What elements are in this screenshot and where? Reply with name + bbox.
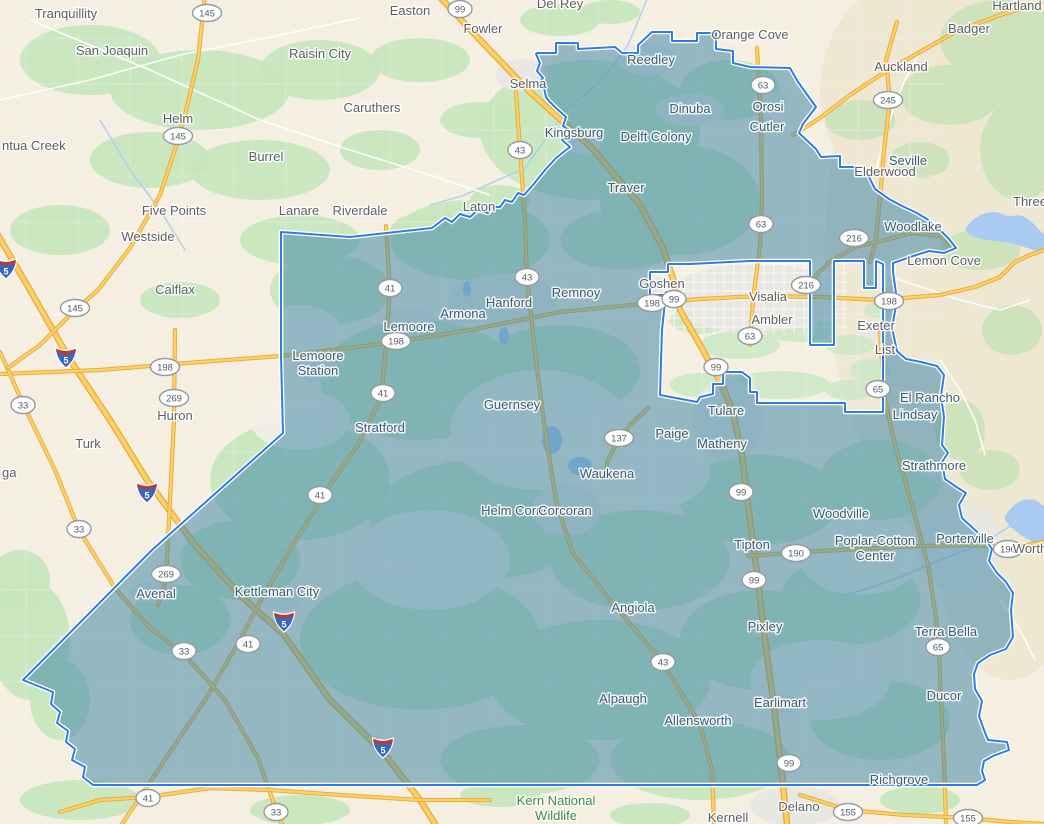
route-shield-245: 245: [874, 92, 903, 109]
place-label-orange-cove[interactable]: Orange Cove: [711, 27, 788, 42]
route-shield-41: 41: [236, 636, 260, 653]
place-label-elderwood[interactable]: Elderwood: [854, 164, 915, 179]
svg-text:43: 43: [658, 657, 669, 668]
route-shield-43: 43: [508, 142, 532, 159]
svg-text:99: 99: [736, 487, 747, 498]
place-label-fowler[interactable]: Fowler: [463, 21, 503, 36]
svg-text:5: 5: [144, 491, 149, 501]
place-label-easton[interactable]: Easton: [390, 3, 430, 18]
place-label-dinuba[interactable]: Dinuba: [669, 101, 711, 116]
svg-text:145: 145: [170, 131, 186, 142]
svg-text:65: 65: [873, 384, 884, 395]
place-label-laton[interactable]: Laton: [463, 199, 496, 214]
svg-text:198: 198: [157, 362, 173, 373]
svg-text:198: 198: [388, 336, 404, 347]
svg-text:41: 41: [378, 388, 389, 399]
route-shield-269: 269: [152, 566, 181, 583]
place-label-lemon-cove[interactable]: Lemon Cove: [907, 253, 981, 268]
svg-text:43: 43: [522, 272, 533, 283]
place-label-kettleman-city[interactable]: Kettleman City: [235, 584, 320, 599]
place-label-huron[interactable]: Huron: [157, 408, 192, 423]
place-label-earlimart[interactable]: Earlimart: [754, 695, 806, 710]
route-shield-137: 137: [605, 430, 634, 447]
svg-text:65: 65: [933, 642, 944, 653]
route-shield-99: 99: [777, 755, 801, 772]
route-shield-198: 198: [151, 359, 180, 376]
place-label-alpaugh[interactable]: Alpaugh: [599, 691, 647, 706]
place-label-allensworth[interactable]: Allensworth: [664, 713, 731, 728]
place-label-lemoore[interactable]: Lemoore: [383, 319, 434, 334]
place-label-helm[interactable]: Helm: [163, 111, 193, 126]
hill-vegetation-patch: [960, 450, 1020, 490]
place-label-raisin-city[interactable]: Raisin City: [289, 46, 352, 61]
place-label-lanare[interactable]: Lanare: [279, 203, 319, 218]
place-label-angiola[interactable]: Angiola: [611, 600, 655, 615]
place-label-woodlake[interactable]: Woodlake: [884, 219, 942, 234]
route-shield-198: 198: [382, 333, 411, 350]
route-shield-145: 145: [164, 128, 193, 145]
place-label-armona[interactable]: Armona: [440, 306, 486, 321]
svg-text:43: 43: [515, 145, 526, 156]
route-shield-63: 63: [751, 77, 775, 94]
route-shield-145: 145: [193, 5, 222, 22]
place-label-turk[interactable]: Turk: [75, 436, 101, 451]
svg-text:33: 33: [179, 646, 190, 657]
svg-text:145: 145: [199, 8, 215, 19]
route-shield-33: 33: [67, 521, 91, 538]
place-label-el-rancho[interactable]: El Rancho: [900, 390, 960, 405]
route-shield-145: 145: [61, 300, 90, 317]
map-viewport[interactable]: 1459914543632456321614519819841431989921…: [0, 0, 1044, 824]
svg-text:33: 33: [18, 400, 29, 411]
place-label-caruthers[interactable]: Caruthers: [343, 100, 401, 115]
place-label-matheny[interactable]: Matheny: [697, 436, 747, 451]
svg-text:137: 137: [611, 433, 627, 444]
place-label-five-points[interactable]: Five Points: [142, 203, 207, 218]
place-label-tranquillity[interactable]: Tranquillity: [35, 6, 98, 21]
svg-text:198: 198: [644, 298, 660, 309]
route-shield-155: 155: [834, 804, 863, 821]
svg-text:245: 245: [880, 95, 896, 106]
svg-text:33: 33: [271, 807, 282, 818]
place-label-san-joaquin[interactable]: San Joaquin: [76, 43, 148, 58]
place-label-tipton[interactable]: Tipton: [734, 537, 770, 552]
place-label-calflax[interactable]: Calflax: [155, 282, 195, 297]
hill-vegetation-patch: [982, 305, 1042, 355]
route-shield-65: 65: [866, 381, 890, 398]
place-label-kernell[interactable]: Kernell: [708, 810, 749, 824]
svg-text:41: 41: [385, 283, 396, 294]
place-label-goshen[interactable]: Goshen: [639, 276, 685, 291]
place-label-ducor[interactable]: Ducor: [927, 688, 962, 703]
place-label-badger[interactable]: Badger: [948, 21, 991, 36]
place-label-woodville[interactable]: Woodville: [813, 506, 869, 521]
place-label-guernsey[interactable]: Guernsey: [484, 397, 541, 412]
route-shield-33: 33: [11, 397, 35, 414]
route-shield-33: 33: [172, 643, 196, 660]
place-label-reedley[interactable]: Reedley: [627, 52, 675, 67]
svg-text:5: 5: [63, 356, 68, 366]
place-label-cutler[interactable]: Cutler: [750, 119, 785, 134]
vegetation-patch: [880, 786, 960, 814]
svg-text:198: 198: [881, 296, 897, 307]
route-shield-155: 155: [954, 810, 983, 824]
route-shield-198: 198: [875, 293, 904, 310]
route-shield-41: 41: [136, 790, 160, 807]
vegetation-patch: [370, 38, 470, 82]
svg-text:41: 41: [143, 793, 154, 804]
svg-text:190: 190: [788, 548, 804, 559]
route-shield-65: 65: [926, 639, 950, 656]
svg-text:63: 63: [745, 331, 756, 342]
route-shield-99: 99: [704, 359, 728, 376]
place-label-traver[interactable]: Traver: [607, 180, 645, 195]
place-label-auckland[interactable]: Auckland: [874, 59, 927, 74]
place-label-ga[interactable]: ga: [2, 465, 17, 480]
route-shield-99: 99: [662, 291, 686, 308]
place-label-three[interactable]: Three: [1013, 194, 1044, 209]
svg-text:155: 155: [840, 807, 856, 818]
svg-text:269: 269: [166, 393, 182, 404]
place-label-remnoy[interactable]: Remnoy: [552, 285, 601, 300]
place-label-lemoore-station[interactable]: LemooreStation: [292, 348, 343, 378]
route-shield-99: 99: [729, 484, 753, 501]
svg-text:99: 99: [669, 294, 680, 305]
svg-text:269: 269: [158, 569, 174, 580]
place-label-visalia[interactable]: Visalia: [749, 289, 788, 304]
place-label-westside[interactable]: Westside: [121, 229, 174, 244]
route-shield-216: 216: [840, 230, 869, 247]
svg-text:41: 41: [315, 490, 326, 501]
place-label-porterville[interactable]: Porterville: [936, 531, 994, 546]
place-label-del-rey[interactable]: Del Rey: [537, 0, 584, 11]
place-label-avenal[interactable]: Avenal: [136, 586, 176, 601]
svg-text:99: 99: [711, 362, 722, 373]
place-label-kingsburg[interactable]: Kingsburg: [545, 125, 604, 140]
place-label-orosi[interactable]: Orosi: [752, 99, 783, 114]
place-label-selma[interactable]: Selma: [510, 76, 548, 91]
svg-text:5: 5: [281, 620, 286, 630]
place-label-delft-colony[interactable]: Delft Colony: [621, 129, 692, 144]
vegetation-patch: [10, 205, 110, 255]
svg-text:33: 33: [74, 524, 85, 535]
route-shield-216: 216: [792, 277, 821, 294]
map-canvas[interactable]: 1459914543632456321614519819841431989921…: [0, 0, 1044, 824]
route-shield-269: 269: [160, 390, 189, 407]
svg-text:155: 155: [960, 813, 976, 824]
place-label-tulare[interactable]: Tulare: [708, 403, 744, 418]
svg-text:41: 41: [243, 639, 254, 650]
route-shield-63: 63: [749, 216, 773, 233]
place-label-delano[interactable]: Delano: [778, 799, 819, 814]
place-label-worth[interactable]: Worth: [1013, 541, 1044, 556]
place-label-corcoran[interactable]: Corcoran: [538, 503, 591, 518]
svg-text:63: 63: [756, 219, 767, 230]
svg-text:145: 145: [67, 303, 83, 314]
route-shield-33: 33: [264, 804, 288, 821]
place-label-lindsay[interactable]: Lindsay: [893, 407, 938, 422]
hill-vegetation-patch: [900, 65, 1000, 125]
place-label-burrel[interactable]: Burrel: [249, 149, 284, 164]
place-label-exeter[interactable]: Exeter: [857, 318, 895, 333]
route-shield-63: 63: [738, 328, 762, 345]
place-label-list[interactable]: List: [875, 342, 896, 357]
svg-text:63: 63: [758, 80, 769, 91]
svg-text:216: 216: [798, 280, 814, 291]
place-label-ambler[interactable]: Ambler: [751, 312, 793, 327]
route-shield-99: 99: [448, 1, 472, 18]
place-label-riverdale[interactable]: Riverdale: [333, 203, 388, 218]
svg-text:99: 99: [749, 575, 760, 586]
svg-text:5: 5: [3, 267, 8, 277]
place-label-stratford[interactable]: Stratford: [355, 420, 405, 435]
vegetation-patch: [580, 0, 640, 24]
place-label-waukena[interactable]: Waukena: [580, 466, 635, 481]
place-label-ntua-creek[interactable]: ntua Creek: [2, 138, 66, 153]
route-shield-43: 43: [651, 654, 675, 671]
place-label-richgrove[interactable]: Richgrove: [870, 772, 929, 787]
route-shield-99: 99: [742, 572, 766, 589]
svg-text:5: 5: [380, 746, 385, 756]
place-label-strathmore[interactable]: Strathmore: [902, 458, 966, 473]
route-shield-190: 190: [782, 545, 811, 562]
place-label-hartland[interactable]: Hartland: [992, 0, 1041, 13]
svg-text:99: 99: [784, 758, 795, 769]
route-shield-41: 41: [371, 385, 395, 402]
place-label-hanford[interactable]: Hanford: [486, 295, 532, 310]
place-label-paige[interactable]: Paige: [655, 426, 688, 441]
place-label-terra-bella[interactable]: Terra Bella: [915, 624, 978, 639]
route-shield-41: 41: [378, 280, 402, 297]
route-shield-43: 43: [515, 269, 539, 286]
route-shield-41: 41: [308, 487, 332, 504]
vegetation-patch: [90, 132, 210, 188]
svg-text:99: 99: [455, 4, 466, 15]
place-label-pixley[interactable]: Pixley: [748, 619, 783, 634]
svg-text:216: 216: [846, 233, 862, 244]
